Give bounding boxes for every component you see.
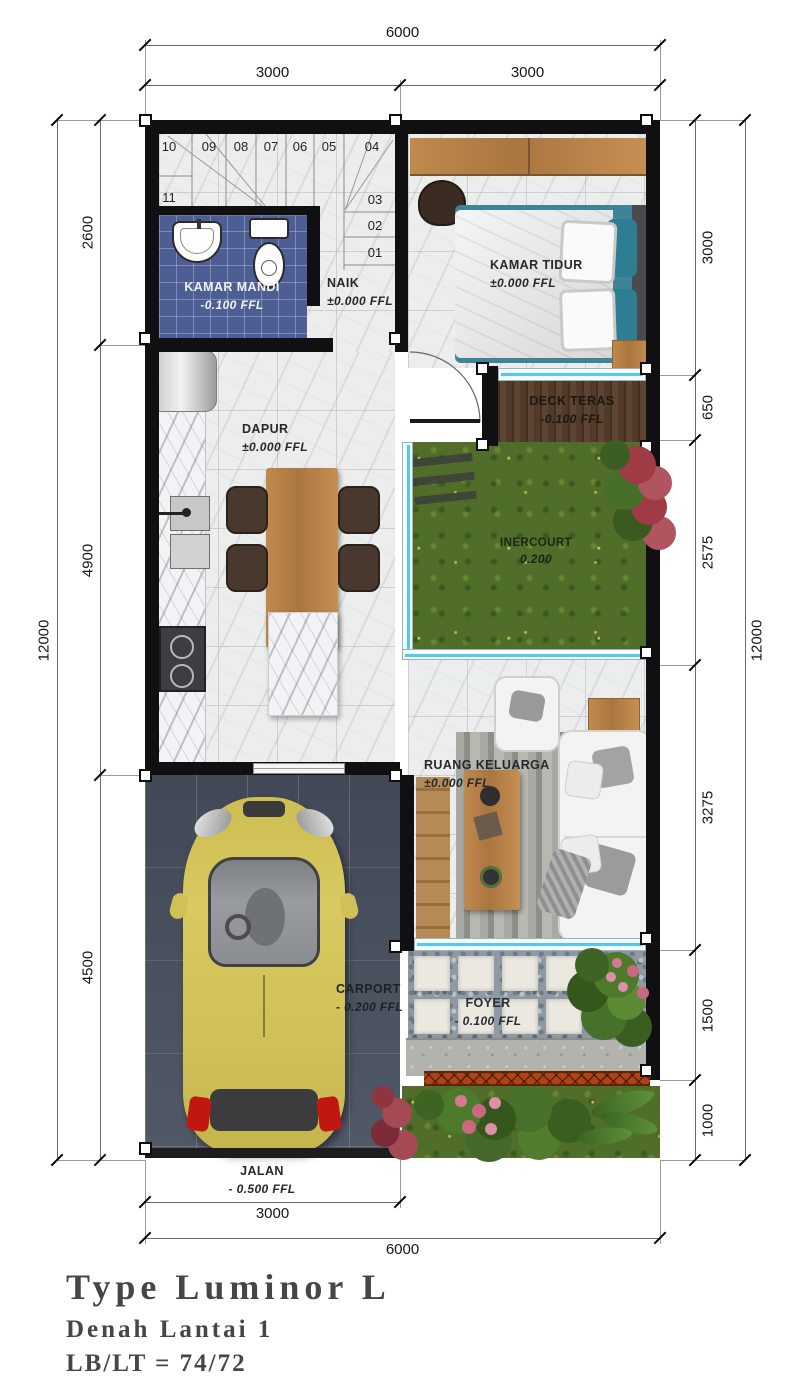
room-name: KAMAR TIDUR [490,258,610,274]
column [640,1064,653,1077]
room-level: - 0.500 FFL [202,1182,322,1197]
stair-step-number: 05 [316,139,342,154]
column [640,646,653,659]
dim-label: 1000 [700,1079,717,1163]
dim-label: 12000 [36,599,53,683]
livingroom-window [414,938,646,951]
dim-extension [660,375,695,376]
column [640,932,653,945]
room-name: FOYER [428,996,548,1012]
room-name: INERCOURT [478,536,594,550]
column [389,332,402,345]
dim-extension [660,120,745,121]
column [139,332,152,345]
room-label-deck-teras: DECK TERAS -0.100 FFL [498,394,646,427]
room-level: -0.100 FFL [498,412,646,427]
room-name: JALAN [202,1164,322,1180]
room-level: - 0.100 FFL [428,1014,548,1029]
dim-extension [145,40,146,120]
wall [395,134,408,352]
wall [482,366,498,446]
room-name: NAIK [327,276,407,292]
dim-label: 12000 [749,599,766,683]
dim-line-top-segments [145,85,660,86]
dim-line-top-overall [145,45,660,46]
room-name: RUANG KELUARGA [424,758,564,774]
innercourt-window-bottom [402,649,646,660]
room-label-kamar-tidur: KAMAR TIDUR ±0.000 FFL [490,258,610,291]
dim-label: 4500 [80,926,97,1010]
room-label-foyer: FOYER - 0.100 FFL [428,996,548,1029]
plan-floor-subtitle: Denah Lantai 1 [66,1316,391,1344]
stair-step-number: 07 [258,139,284,154]
stair-step-number: 08 [228,139,254,154]
garden-shrubs [414,1090,444,1120]
title-block: Type Luminor L Denah Lantai 1 LB/LT = 74… [66,1266,391,1378]
dim-extension [100,345,145,346]
wall [159,206,307,215]
dim-extension [660,440,695,441]
room-level: 0.200 [478,552,594,567]
dim-line-bottom-overall [145,1238,660,1239]
room-name: KAMAR MANDI [162,280,302,296]
dim-label: 2600 [80,191,97,275]
dim-label: 6000 [345,1241,460,1258]
column [139,769,152,782]
dim-label: 3000 [200,64,345,81]
stair-step-number: 01 [362,245,388,260]
column [640,114,653,127]
column [389,114,402,127]
column [139,1142,152,1155]
room-label-carport: CARPORT - 0.200 FFL [336,982,426,1015]
dim-label: 3000 [200,1205,345,1222]
plan-type-title: Type Luminor L [66,1266,391,1308]
column [476,438,489,451]
room-level: - 0.200 FFL [336,1000,426,1015]
dim-label: 3000 [455,64,600,81]
room-level: ±0.000 FFL [424,776,564,791]
column [389,769,402,782]
dim-label: 650 [700,366,717,450]
wall [145,1148,403,1158]
wall [400,775,414,951]
wall [145,338,333,352]
room-label-kamar-mandi: KAMAR MANDI -0.100 FFL [162,280,302,313]
dim-extension [660,40,661,120]
room-level: ±0.000 FFL [327,294,407,309]
innercourt-window-left [402,442,413,658]
column [476,362,489,375]
stair-step-number: 10 [156,139,182,154]
wall [145,134,159,775]
stair-step-number: 11 [156,190,182,205]
stair-step-number: 03 [362,192,388,207]
kitchen-window [253,763,345,774]
dim-label: 3000 [700,206,717,290]
stair-step-number: 09 [196,139,222,154]
dim-line-right-segments [695,120,696,1160]
garden-flowers [455,1095,467,1107]
dim-line-left-overall [57,120,58,1160]
dim-label: 3275 [700,766,717,850]
wall [145,120,660,134]
room-name: CARPORT [336,982,426,998]
room-level: ±0.000 FFL [490,276,610,291]
dim-line-bottom-segment [145,1202,400,1203]
room-label-jalan: JALAN - 0.500 FFL [202,1164,322,1197]
room-name: DECK TERAS [498,394,646,410]
column [139,114,152,127]
dim-extension [660,950,695,951]
column [389,940,402,953]
garden-fence [424,1071,650,1086]
stair-step-number: 02 [362,218,388,233]
stair-step-number: 04 [359,139,385,154]
dim-label: 6000 [345,24,460,41]
dim-extension [660,1080,695,1081]
dim-extension [660,665,695,666]
dim-label: 4900 [80,519,97,603]
column [640,362,653,375]
wall [307,206,320,306]
garden-red-plant [372,1086,394,1108]
stair-step-number: 06 [287,139,313,154]
dim-line-right-overall [745,120,746,1160]
column [640,440,653,453]
innercourt-plant [600,440,630,470]
room-label-inercourt: INERCOURT 0.200 [478,536,594,567]
dim-line-left-segments [100,120,101,1160]
foyer-flowers [612,958,622,968]
dim-extension [660,1160,661,1244]
room-label-ruang-keluarga: RUANG KELUARGA ±0.000 FFL [424,758,564,791]
plan-area-ratio: LB/LT = 74/72 [66,1350,391,1378]
dim-label: 1500 [700,974,717,1058]
room-name: DAPUR [242,422,342,438]
foyer-plant [575,948,609,982]
room-label-dapur: DAPUR ±0.000 FFL [242,422,342,455]
floor-plan-page: 6000 3000 3000 2600 4900 4500 12000 3000… [0,0,787,1400]
bedroom-deck-window [498,368,646,381]
room-label-naik: NAIK ±0.000 FFL [327,276,407,309]
room-level: ±0.000 FFL [242,440,342,455]
dim-label: 2575 [700,511,717,595]
room-level: -0.100 FFL [162,298,302,313]
